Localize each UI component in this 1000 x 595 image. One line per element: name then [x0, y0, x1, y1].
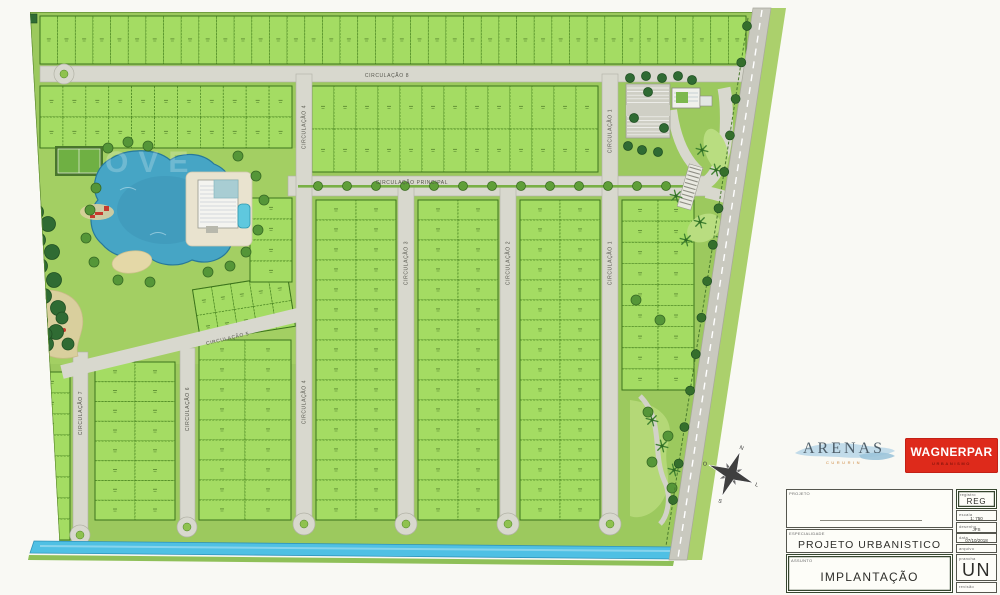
- prancha-value: UN: [957, 560, 996, 581]
- label-circulacao-1: CIRCULAÇÃO 1: [607, 241, 614, 285]
- label-circulacao-3: CIRCULAÇÃO 3: [403, 241, 410, 285]
- road-circulacao-6: [180, 348, 195, 524]
- lot-block: [418, 200, 498, 520]
- road-circulacao-2: [500, 186, 516, 532]
- prancha-cell: prancha UN: [956, 554, 997, 581]
- lot-block: [316, 200, 396, 520]
- arenas-logo: ARENAS CURURIN: [791, 438, 897, 472]
- escala-cell: escala 1: 750: [956, 510, 997, 521]
- clubhouse: [186, 172, 252, 246]
- road-circulacao-7: [73, 352, 88, 540]
- lot-block: [40, 86, 292, 148]
- road-circulacao-3: [398, 186, 414, 532]
- especialidade-cell: ESPECIALIDADE PROJETO URBANISTICO: [786, 529, 953, 553]
- compass-e: L: [754, 482, 759, 489]
- label-circulacao-4-top: CIRCULAÇÃO 4: [301, 105, 308, 149]
- especialidade-value: PROJETO URBANISTICO: [787, 539, 952, 551]
- assunto-label: ASSUNTO: [791, 558, 812, 563]
- data-cell: data 07/10/2018: [956, 533, 997, 543]
- lot-block: [250, 198, 292, 282]
- wagnerpar-logo-text: WAGNERPAR: [905, 445, 998, 459]
- projeto-label: PROJETO: [789, 491, 810, 496]
- lot-block: [622, 200, 694, 390]
- assunto-value: IMPLANTAÇÃO: [787, 570, 952, 584]
- lot-block: [199, 340, 291, 520]
- pool: [238, 204, 250, 228]
- revisao-label: revisão: [959, 584, 974, 589]
- label-circulacao-7: CIRCULAÇÃO 7: [77, 391, 84, 435]
- desenho-cell: desenho JFS: [956, 522, 997, 533]
- label-circulacao-8: CIRCULAÇÃO 8: [365, 72, 409, 79]
- site-plan-page: CIRCULAÇÃO 8 CIRCULAÇÃO PRINCIPAL CIRCUL…: [0, 0, 1000, 595]
- compass-n: N: [738, 445, 744, 452]
- label-circulacao-principal: CIRCULAÇÃO PRINCIPAL: [376, 179, 448, 186]
- especialidade-label: ESPECIALIDADE: [789, 531, 825, 536]
- lot-block: [520, 200, 600, 520]
- watermark: OVE: [105, 146, 198, 179]
- arenas-logo-subtitle: CURURIN: [791, 460, 897, 465]
- desenho-value: JFS: [957, 527, 996, 532]
- assunto-cell: ASSUNTO IMPLANTAÇÃO: [786, 554, 953, 593]
- lot-block: [95, 362, 175, 520]
- projeto-cell: PROJETO: [786, 489, 953, 528]
- wagnerpar-logo-subtitle: URBANISMO: [905, 461, 998, 466]
- registro-cell: registro REG: [956, 489, 997, 509]
- compass-s: S: [717, 498, 723, 505]
- revisao-cell: revisão: [956, 582, 997, 593]
- escala-value: 1: 750: [957, 516, 996, 521]
- lot-block: [40, 16, 746, 64]
- arquivo-label: arquivo: [959, 546, 974, 551]
- arenas-logo-text: ARENAS: [791, 440, 897, 458]
- label-circulacao-6: CIRCULAÇÃO 6: [184, 387, 191, 431]
- label-circulacao-1-top: CIRCULAÇÃO 1: [607, 109, 614, 153]
- label-circulacao-2: CIRCULAÇÃO 2: [505, 241, 512, 285]
- lot-block: [312, 86, 598, 172]
- arquivo-cell: arquivo: [956, 544, 997, 554]
- data-value: 07/10/2018: [957, 538, 996, 543]
- registro-value: REG: [957, 497, 996, 506]
- projeto-blank-line: [820, 520, 922, 521]
- label-circulacao-4: CIRCULAÇÃO 4: [301, 380, 308, 424]
- wagnerpar-logo: WAGNERPAR URBANISMO: [905, 438, 998, 473]
